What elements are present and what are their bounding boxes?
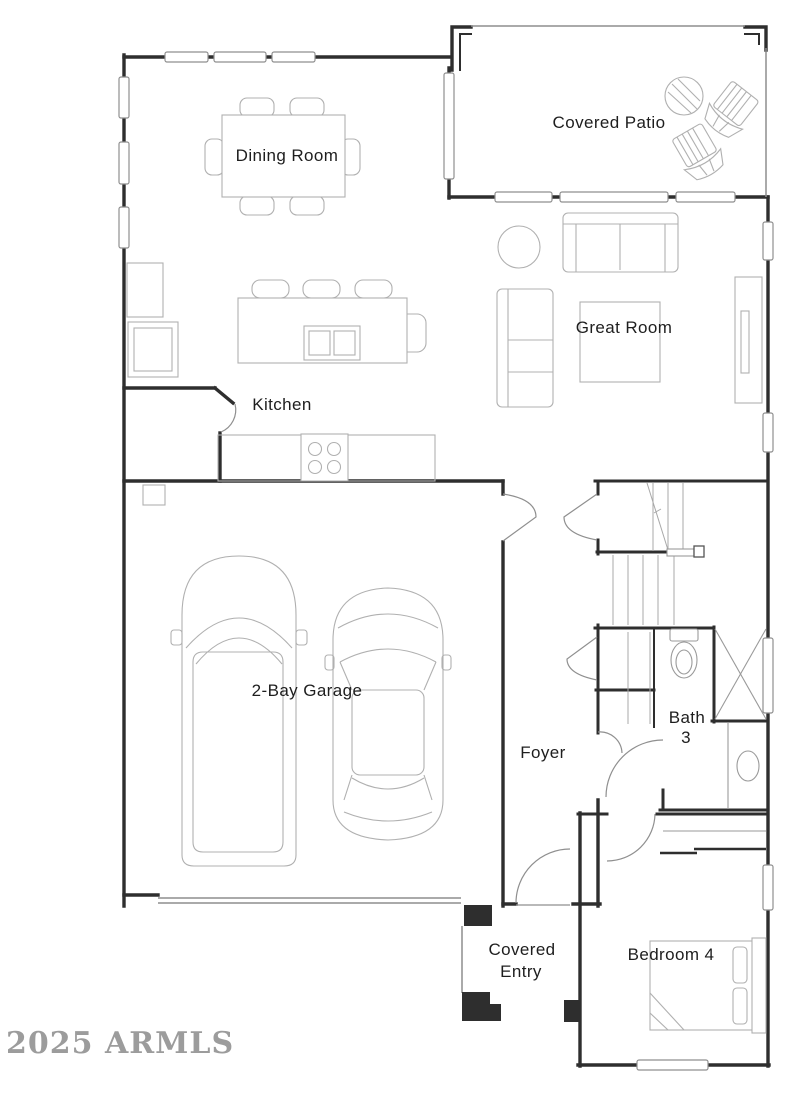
refrigerator bbox=[128, 322, 178, 377]
mirror bbox=[171, 630, 182, 645]
window bbox=[214, 52, 266, 62]
patio-furniture bbox=[665, 77, 762, 185]
window bbox=[165, 52, 208, 62]
label-great-room: Great Room bbox=[576, 318, 673, 337]
label-garage: 2-Bay Garage bbox=[252, 681, 363, 700]
label-bath-line1: Bath bbox=[669, 708, 706, 727]
toilet-tank bbox=[670, 629, 698, 641]
pantry-door bbox=[221, 404, 236, 432]
stool bbox=[252, 280, 289, 298]
label-dining-room: Dining Room bbox=[236, 146, 339, 165]
chair bbox=[240, 196, 274, 215]
sliding-door bbox=[560, 192, 668, 202]
floor-plan-canvas: Dining Room Covered Patio Great Room Kit… bbox=[0, 0, 800, 1099]
window bbox=[763, 222, 773, 260]
loveseat bbox=[497, 289, 553, 407]
toilet-bowl bbox=[671, 642, 697, 678]
side-table bbox=[498, 226, 540, 268]
bath-sink bbox=[737, 751, 759, 781]
water-heater bbox=[143, 485, 165, 505]
stool bbox=[303, 280, 340, 298]
entry-post bbox=[462, 992, 501, 1021]
stair-hall-door bbox=[564, 494, 597, 540]
entry-post bbox=[564, 1000, 580, 1022]
range bbox=[301, 434, 348, 481]
car bbox=[325, 588, 451, 840]
window bbox=[119, 207, 129, 248]
label-bath-line2: 3 bbox=[681, 728, 691, 747]
windows bbox=[119, 52, 773, 1070]
window bbox=[763, 413, 773, 452]
garage-door bbox=[158, 898, 461, 903]
patio-chair bbox=[699, 78, 763, 143]
chair bbox=[290, 98, 324, 117]
kitchen-furniture bbox=[127, 263, 435, 505]
chair bbox=[290, 196, 324, 215]
stair-direction-line bbox=[647, 483, 668, 550]
window bbox=[272, 52, 315, 62]
great-room-furniture bbox=[497, 213, 762, 407]
window bbox=[637, 1060, 708, 1070]
stairs bbox=[613, 483, 704, 724]
newel-post bbox=[694, 546, 704, 557]
car-roof bbox=[352, 690, 424, 775]
front-door bbox=[516, 849, 570, 903]
garage-entry-door bbox=[503, 494, 536, 541]
chair bbox=[240, 98, 274, 117]
window bbox=[495, 192, 552, 202]
window bbox=[676, 192, 735, 202]
stair-handrail bbox=[667, 549, 694, 556]
cabinet bbox=[127, 263, 163, 317]
stool bbox=[355, 280, 392, 298]
hall-door bbox=[598, 732, 622, 753]
label-bedroom: Bedroom 4 bbox=[628, 945, 715, 964]
interior-walls bbox=[578, 481, 768, 814]
patio-structure bbox=[452, 26, 766, 197]
window bbox=[763, 865, 773, 910]
armls-watermark: 2025 ARMLS bbox=[6, 1026, 234, 1061]
refrigerator-inner bbox=[134, 328, 172, 371]
label-entry-line1: Covered bbox=[488, 940, 555, 959]
label-kitchen: Kitchen bbox=[252, 395, 312, 414]
mirror bbox=[296, 630, 307, 645]
label-covered-patio: Covered Patio bbox=[553, 113, 666, 132]
window bbox=[119, 142, 129, 184]
window bbox=[119, 77, 129, 118]
coffee-table bbox=[580, 302, 660, 382]
window bbox=[763, 638, 773, 713]
van bbox=[171, 556, 307, 866]
bedroom-door bbox=[607, 814, 655, 861]
patio-door-window bbox=[444, 73, 454, 179]
entry-post bbox=[464, 905, 492, 926]
label-entry-line2: Entry bbox=[500, 962, 542, 981]
chair bbox=[205, 139, 224, 175]
exterior-walls bbox=[124, 55, 769, 1066]
label-foyer: Foyer bbox=[520, 743, 565, 762]
understair-closet-door bbox=[567, 637, 597, 680]
headboard bbox=[752, 938, 766, 1033]
floor-plan: Dining Room Covered Patio Great Room Kit… bbox=[0, 0, 800, 1099]
bath-door bbox=[606, 740, 663, 797]
bedroom-furniture bbox=[650, 831, 766, 1033]
